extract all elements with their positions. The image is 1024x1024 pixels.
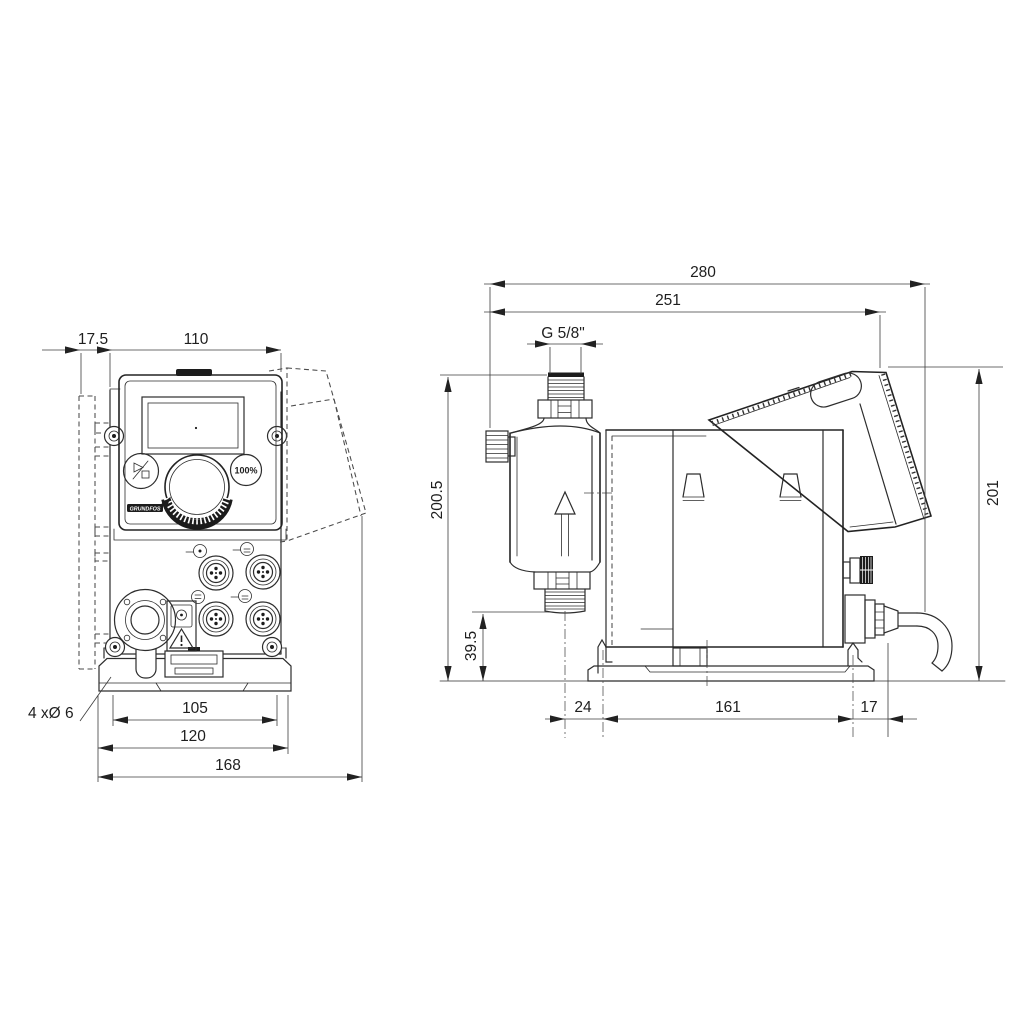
cube-handle-slot — [807, 370, 864, 411]
dim-rear-foot: 17 — [860, 699, 877, 716]
dim-base-length: 161 — [715, 699, 741, 716]
panel-top-tab — [176, 369, 212, 376]
dim-thread: G 5/8" — [541, 325, 584, 342]
dim-height: 200.5 — [429, 481, 446, 520]
percent-button: 100% — [231, 455, 262, 486]
control-panel: 100% GRUNDFOS — [114, 369, 286, 540]
dim-depth-to-cube: 251 — [655, 292, 681, 309]
connector-2 — [246, 555, 280, 589]
percent-button-label: 100% — [234, 466, 257, 476]
cable-gland-side — [845, 595, 898, 643]
cable-gland-front — [115, 590, 176, 651]
warning-label — [167, 601, 196, 651]
front-dimensions: 17.5 110 105 120 168 4 xØ 6 — [28, 331, 362, 782]
side-view: 280 251 G 5/8" 200.5 39.5 — [429, 264, 1005, 738]
connector-4 — [246, 602, 280, 636]
hole-note: 4 xØ 6 — [28, 705, 74, 722]
rotary-dial — [165, 455, 229, 525]
connector-3 — [199, 602, 233, 636]
power-cable-side — [898, 613, 952, 671]
front-view: 100% GRUNDFOS — [28, 331, 366, 782]
dim-hole-spacing: 105 — [182, 700, 208, 717]
dim-front-width: 110 — [184, 331, 209, 348]
motor-housing — [606, 430, 843, 647]
display — [142, 397, 244, 454]
start-stop-button — [124, 454, 159, 489]
dim-plate-width: 120 — [180, 728, 206, 745]
start-stop-icon — [133, 461, 149, 479]
pump-dimensional-drawing: 100% GRUNDFOS — [0, 0, 1024, 1024]
dim-rear-height: 201 — [985, 480, 1002, 506]
connector-1 — [199, 556, 233, 590]
brand-label: GRUNDFOS — [130, 507, 161, 513]
dim-port-height: 39.5 — [463, 631, 480, 661]
dimensional-drawing-page: 100% GRUNDFOS — [0, 0, 1024, 1024]
control-cube-side — [709, 370, 931, 532]
m12-connectors — [186, 543, 280, 637]
swung-cube-hidden-outline — [269, 368, 366, 542]
dim-bracket-offset: 17.5 — [78, 331, 108, 348]
dim-total-depth: 280 — [690, 264, 716, 281]
dosing-head — [486, 431, 614, 738]
bottom-fitting — [534, 572, 590, 613]
top-fitting — [511, 373, 600, 434]
rear-connections — [843, 556, 952, 671]
flow-direction-arrow — [555, 492, 575, 556]
dim-front-foot: 24 — [574, 699, 592, 716]
dim-total-width: 168 — [215, 757, 241, 774]
